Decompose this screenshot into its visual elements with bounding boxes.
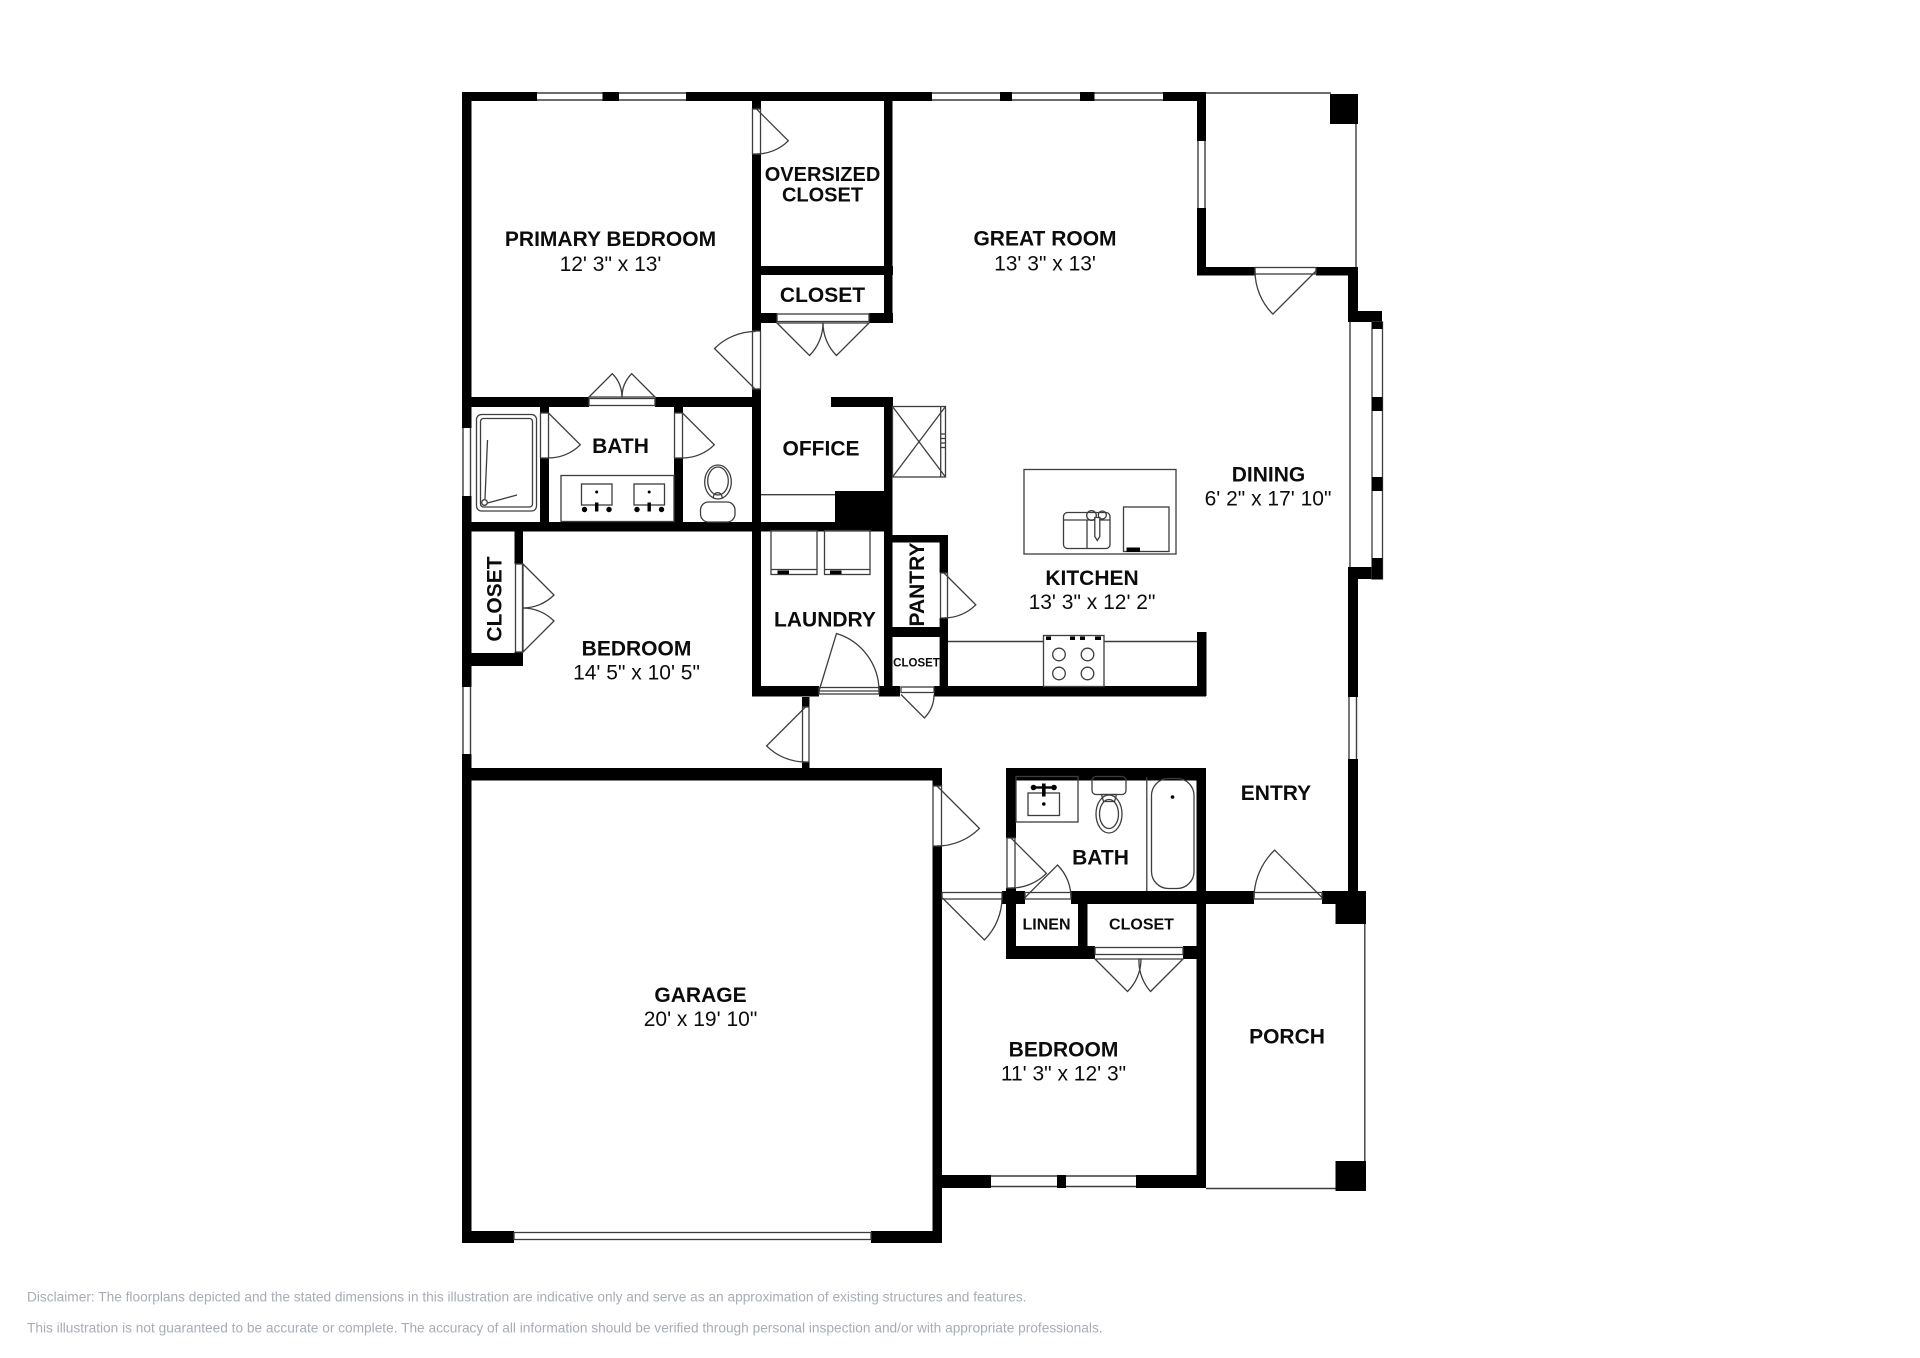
svg-text:6' 2" x 17' 10": 6' 2" x 17' 10" — [1205, 488, 1332, 511]
svg-text:ENTRY: ENTRY — [1241, 782, 1311, 805]
svg-text:20' x 19' 10": 20' x 19' 10" — [644, 1008, 758, 1031]
svg-text:CLOSET: CLOSET — [780, 284, 865, 307]
svg-text:Disclaimer: The floorplans dep: Disclaimer: The floorplans depicted and … — [27, 1290, 1026, 1305]
svg-text:CLOSET: CLOSET — [893, 658, 940, 670]
svg-text:BATH: BATH — [592, 435, 649, 458]
svg-text:This illustration is not guara: This illustration is not guaranteed to b… — [27, 1321, 1103, 1336]
svg-text:14' 5" x 10' 5": 14' 5" x 10' 5" — [573, 662, 700, 685]
svg-text:DINING: DINING — [1232, 464, 1306, 487]
svg-text:BATH: BATH — [1072, 847, 1129, 870]
svg-text:LAUNDRY: LAUNDRY — [774, 609, 876, 632]
svg-text:CLOSET: CLOSET — [484, 556, 507, 641]
svg-text:13' 3" x 13': 13' 3" x 13' — [994, 253, 1096, 276]
svg-text:PANTRY: PANTRY — [906, 543, 929, 627]
svg-text:PORCH: PORCH — [1249, 1026, 1325, 1049]
svg-text:11' 3" x 12' 3": 11' 3" x 12' 3" — [1001, 1063, 1126, 1086]
svg-text:13' 3" x 12' 2": 13' 3" x 12' 2" — [1029, 591, 1156, 614]
svg-text:GREAT ROOM: GREAT ROOM — [973, 228, 1116, 251]
svg-text:BEDROOM: BEDROOM — [582, 638, 692, 661]
svg-text:BEDROOM: BEDROOM — [1009, 1039, 1119, 1062]
svg-text:LINEN: LINEN — [1023, 917, 1071, 934]
svg-text:OVERSIZED: OVERSIZED — [765, 164, 881, 186]
svg-text:GARAGE: GARAGE — [654, 984, 746, 1007]
svg-text:12' 3" x 13': 12' 3" x 13' — [560, 253, 662, 276]
svg-text:KITCHEN: KITCHEN — [1045, 567, 1138, 590]
svg-text:CLOSET: CLOSET — [1109, 917, 1174, 934]
svg-text:OFFICE: OFFICE — [783, 438, 860, 461]
svg-text:CLOSET: CLOSET — [782, 185, 863, 207]
svg-text:PRIMARY BEDROOM: PRIMARY BEDROOM — [505, 228, 716, 251]
